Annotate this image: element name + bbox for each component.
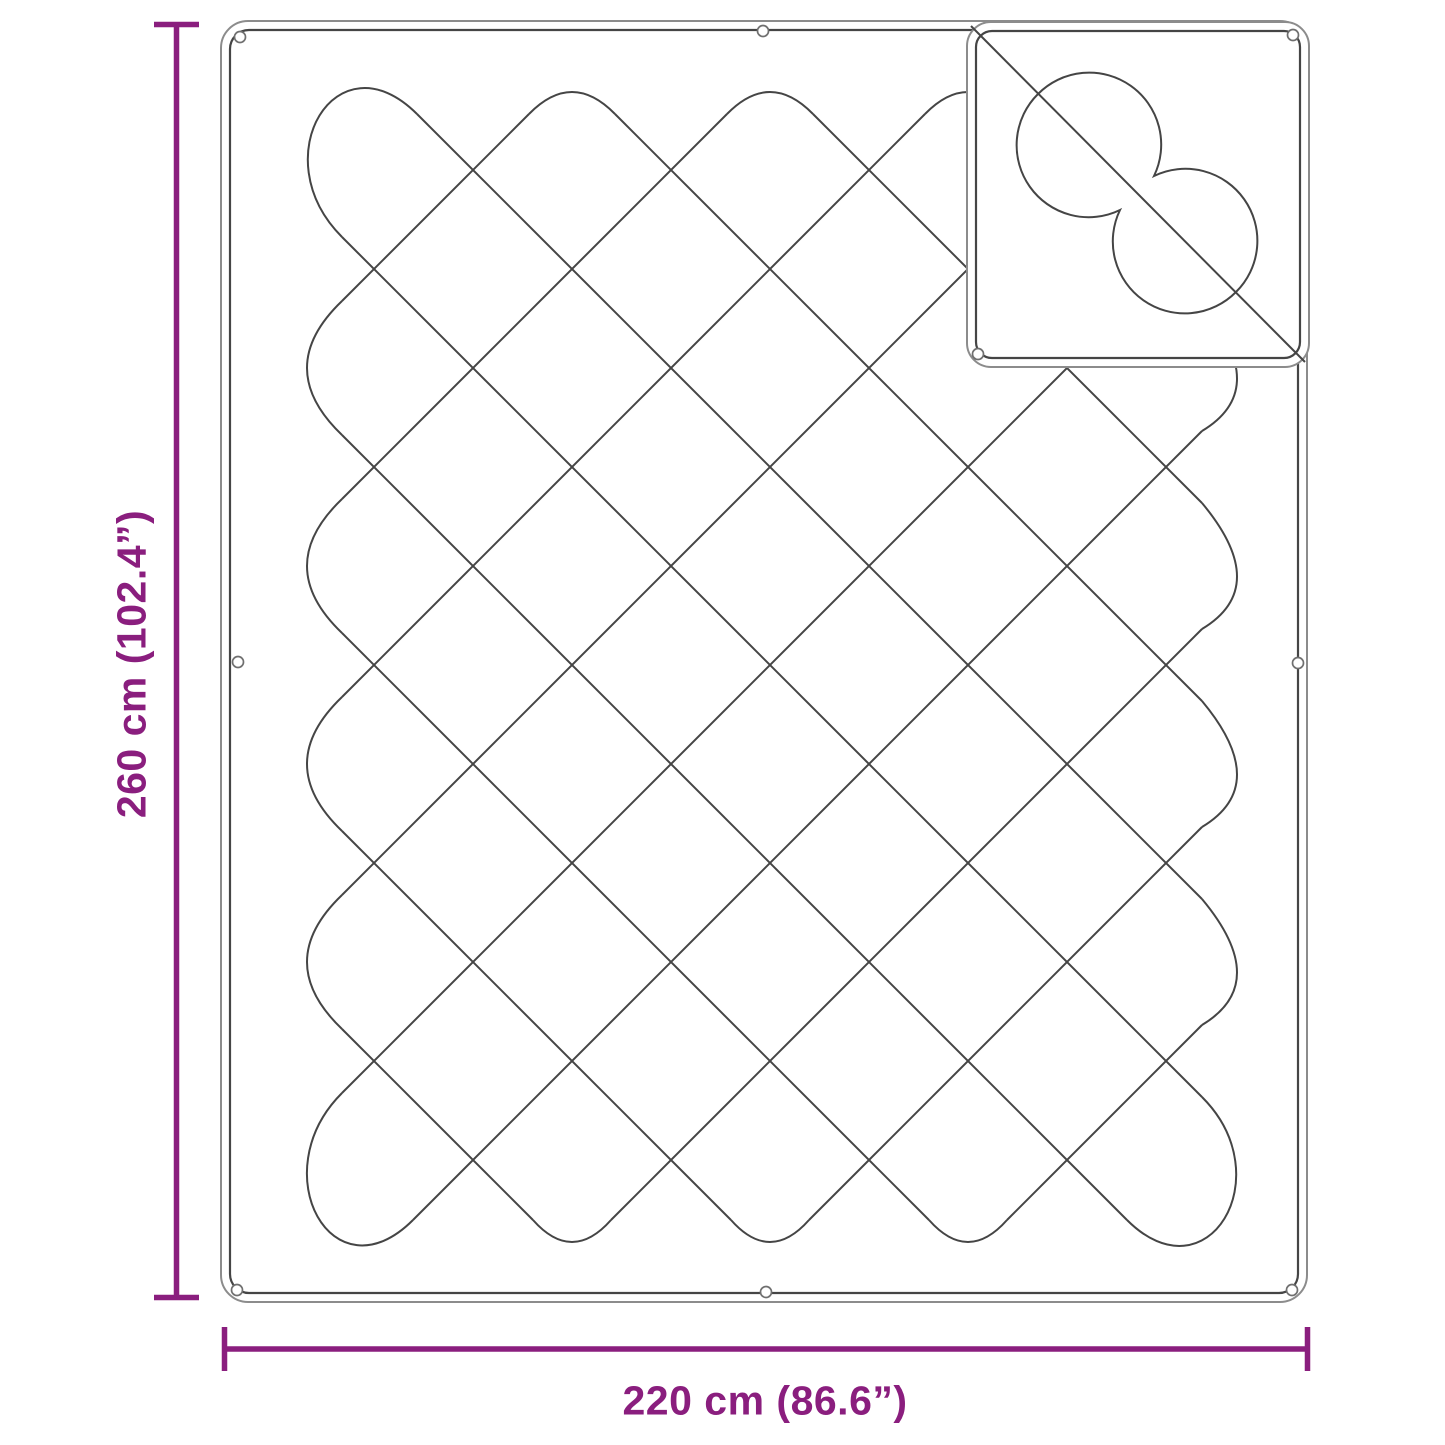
eyelet bbox=[973, 349, 984, 360]
eyelet bbox=[1288, 30, 1299, 41]
quilt-stitch-path bbox=[342, 1029, 533, 1220]
quilt-stitch-path bbox=[307, 301, 342, 435]
quilt-stitch-path bbox=[1127, 1097, 1236, 1246]
height-dimension-line bbox=[154, 25, 199, 1298]
quilt-stitch-path bbox=[731, 1220, 809, 1242]
blanket-diagram bbox=[0, 0, 1445, 1445]
eyelet bbox=[1287, 1285, 1298, 1296]
diagram-canvas: 260 cm (102.4”) 220 cm (86.6”) bbox=[0, 0, 1445, 1445]
quilt-stitch-path bbox=[307, 499, 342, 633]
folded-corner-flap bbox=[967, 22, 1309, 367]
eyelet bbox=[232, 1285, 243, 1296]
quilt-stitch-path bbox=[413, 431, 1202, 1220]
quilt-stitch-path bbox=[533, 1220, 611, 1242]
quilt-stitch-path bbox=[342, 114, 727, 499]
eyelet bbox=[1293, 658, 1304, 669]
quilt-stitch-path bbox=[307, 1093, 413, 1245]
quilt-stitch-path bbox=[308, 88, 417, 237]
quilt-stitch-path bbox=[727, 92, 813, 114]
quilt-stitch-path bbox=[1202, 503, 1237, 629]
width-dimension-label: 220 cm (86.6”) bbox=[622, 1378, 907, 1425]
quilt-stitch-path bbox=[342, 114, 529, 301]
quilt-stitch-path bbox=[307, 895, 342, 1029]
quilt-stitch-path bbox=[809, 827, 1202, 1220]
quilt-stitch-path bbox=[529, 92, 615, 114]
quilt-stitch-path bbox=[342, 435, 1127, 1220]
quilt-stitch-path bbox=[307, 697, 342, 831]
width-dimension-line bbox=[225, 1327, 1308, 1371]
quilt-stitch-path bbox=[342, 633, 929, 1220]
quilt-stitch-path bbox=[342, 114, 925, 697]
eyelet bbox=[761, 1287, 772, 1298]
quilt-stitch-path bbox=[1007, 1025, 1202, 1220]
quilt-stitch-path bbox=[929, 1220, 1007, 1242]
eyelet bbox=[758, 26, 769, 37]
eyelet bbox=[235, 32, 246, 43]
height-dimension-label: 260 cm (102.4”) bbox=[109, 510, 156, 818]
quilt-stitch-path bbox=[1202, 701, 1237, 827]
eyelet bbox=[233, 657, 244, 668]
quilt-stitch-path bbox=[342, 831, 731, 1220]
quilt-stitch-path bbox=[1202, 899, 1237, 1025]
quilt-stitch-path bbox=[611, 629, 1202, 1220]
